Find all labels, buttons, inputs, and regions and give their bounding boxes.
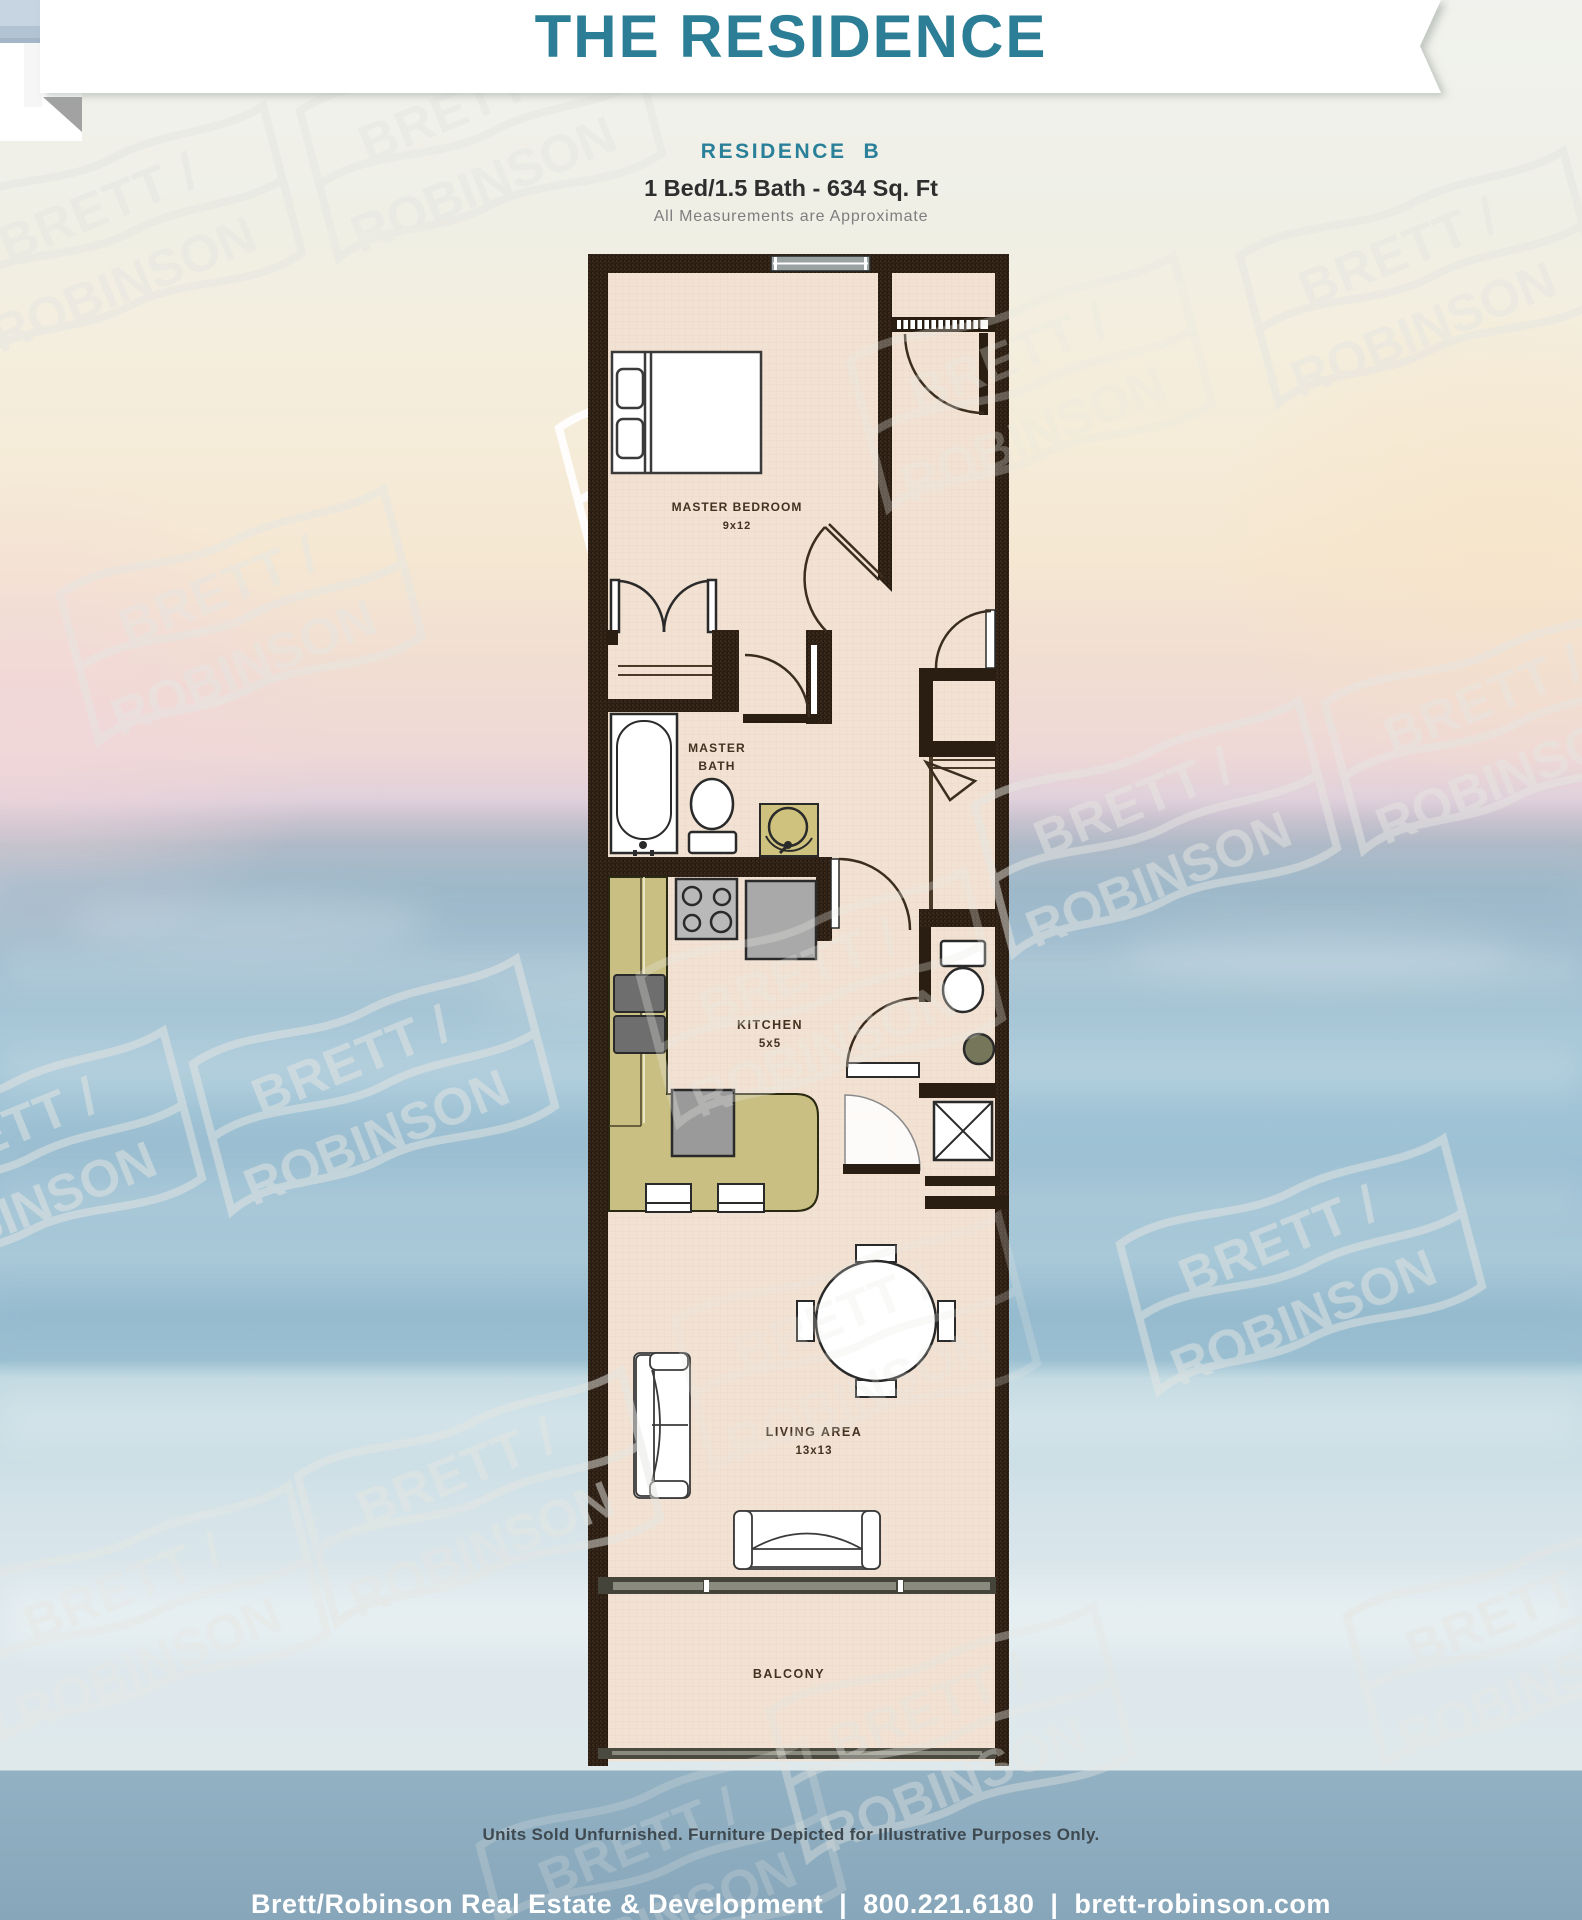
svg-text:THE RESIDENCE: THE RESIDENCE [535, 3, 1048, 70]
svg-text:1 Bed/1.5 Bath - 634 Sq. Ft: 1 Bed/1.5 Bath - 634 Sq. Ft [644, 175, 938, 201]
svg-text:9x12: 9x12 [723, 520, 751, 532]
svg-text:BALCONY: BALCONY [753, 1667, 825, 1681]
svg-text:RESIDENCE B: RESIDENCE B [701, 140, 882, 163]
svg-text:All Measurements are Approxima: All Measurements are Approximate [654, 208, 929, 225]
svg-text:Brett/Robinson Real Estate & D: Brett/Robinson Real Estate & Development… [251, 1889, 1331, 1919]
svg-text:MASTER: MASTER [688, 741, 746, 755]
svg-text:BATH: BATH [698, 759, 735, 773]
svg-text:Units Sold Unfurnished. Furnit: Units Sold Unfurnished. Furniture Depict… [483, 1825, 1100, 1844]
svg-text:MASTER BEDROOM: MASTER BEDROOM [672, 500, 803, 514]
